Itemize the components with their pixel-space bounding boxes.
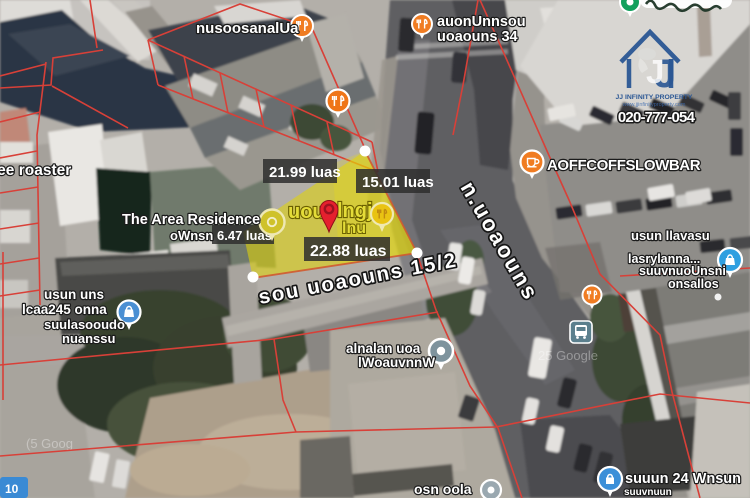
svg-text:JJ INFINITY PROPERTY: JJ INFINITY PROPERTY — [616, 94, 693, 101]
svg-text:osn oola: osn oola — [414, 481, 472, 497]
svg-text:suuvnuoUnsni: suuvnuoUnsni — [639, 264, 726, 278]
svg-text:AOFFCOFFSLOWBAR: AOFFCOFFSLOWBAR — [547, 157, 701, 174]
svg-text:fee roaster: fee roaster — [0, 162, 71, 179]
svg-text:lnu: lnu — [342, 220, 366, 237]
svg-text:suuvnuun: suuvnuun — [624, 487, 672, 498]
svg-text:suuun 24 Wnsun: suuun 24 Wnsun — [625, 471, 741, 487]
svg-text:usun llavasu: usun llavasu — [631, 228, 710, 243]
svg-text:oWnsn: oWnsn — [170, 228, 213, 243]
svg-text:lWoauvnnW: lWoauvnnW — [358, 355, 435, 370]
svg-text:15.01 luas: 15.01 luas — [362, 174, 434, 191]
svg-text:020-777-054: 020-777-054 — [618, 109, 696, 126]
svg-text:onsallos: onsallos — [668, 277, 719, 291]
svg-text:10: 10 — [5, 482, 19, 496]
svg-text:uoaouns 34: uoaouns 34 — [437, 29, 518, 45]
svg-text:lngj: lngj — [337, 200, 373, 222]
svg-text:alnalan uoa: alnalan uoa — [346, 341, 421, 356]
svg-text:auonUnnsou: auonUnnsou — [437, 14, 526, 30]
svg-text:The Area Residence: The Area Residence — [122, 212, 260, 228]
svg-text:lcaa245 onna: lcaa245 onna — [22, 302, 107, 317]
svg-text:(5 Goog: (5 Goog — [26, 436, 73, 451]
svg-text:uou: uou — [288, 201, 325, 223]
svg-text:J: J — [646, 53, 664, 90]
svg-text:usun uns: usun uns — [44, 287, 104, 302]
svg-text:25 Google: 25 Google — [538, 348, 598, 363]
svg-text:nusoosanalUa: nusoosanalUa — [196, 20, 299, 37]
svg-text:www.jjinfinityproperty.com: www.jjinfinityproperty.com — [622, 102, 686, 108]
svg-text:21.99 luas: 21.99 luas — [269, 164, 341, 181]
svg-text:nuanssu: nuanssu — [62, 331, 116, 346]
svg-text:suulasooudo: suulasooudo — [44, 317, 125, 332]
svg-text:22.88 luas: 22.88 luas — [310, 243, 387, 260]
